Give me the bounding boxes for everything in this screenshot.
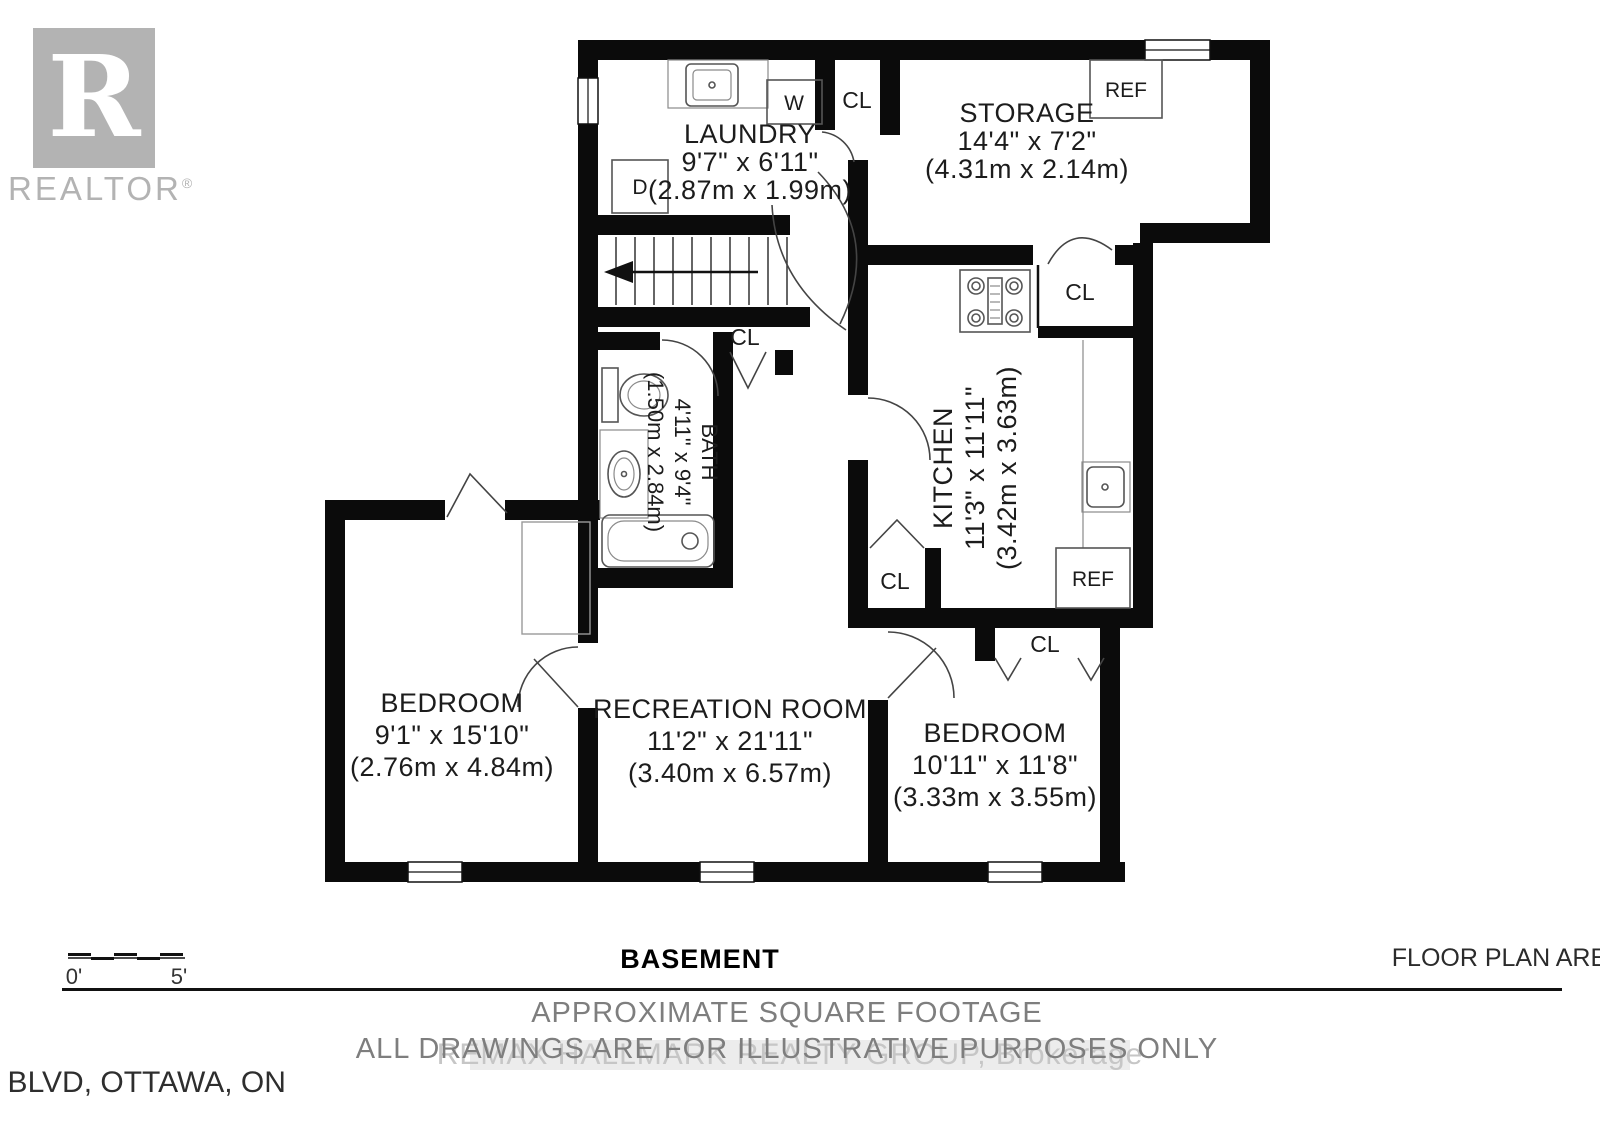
room-label-storage: STORAGE 14'4" x 7'2" (4.31m x 2.14m) bbox=[925, 98, 1129, 184]
svg-text:BEDROOM: BEDROOM bbox=[923, 718, 1066, 748]
room-label-bath: BATH 4'11" x 9'4" (1.50m x 2.84m) bbox=[643, 372, 722, 532]
window bbox=[578, 78, 598, 124]
svg-text:(3.42m x 3.63m): (3.42m x 3.63m) bbox=[992, 366, 1022, 570]
svg-text:RECREATION ROOM: RECREATION ROOM bbox=[593, 694, 867, 724]
svg-text:(3.33m x 3.55m): (3.33m x 3.55m) bbox=[893, 782, 1097, 812]
scale-bar: 0' 5' bbox=[66, 953, 187, 989]
washer-box: W bbox=[767, 80, 822, 124]
floor-plan-area-note: FLOOR PLAN AREA 992 sq.ft. bbox=[1392, 944, 1600, 972]
disclaimer-line-1: APPROXIMATE SQUARE FOOTAGE bbox=[531, 997, 1043, 1029]
svg-text:BATH: BATH bbox=[697, 423, 722, 480]
fridge-label-kitchen: REF bbox=[1072, 568, 1114, 591]
closet-marker: CL bbox=[842, 87, 872, 113]
svg-text:(2.76m x 4.84m): (2.76m x 4.84m) bbox=[350, 752, 554, 782]
floor-name-title: BASEMENT bbox=[620, 944, 780, 974]
scale-end-label: 5' bbox=[171, 964, 187, 989]
svg-text:STORAGE: STORAGE bbox=[959, 98, 1094, 128]
closet-marker: CL bbox=[880, 568, 910, 594]
fridge-box-kitchen: REF bbox=[1056, 548, 1130, 608]
floor-plan-page: R REALTOR® bbox=[0, 0, 1600, 1131]
room-label-laundry: LAUNDRY 9'7" x 6'11" (2.87m x 1.99m) bbox=[648, 119, 852, 205]
svg-text:11'2" x 21'11": 11'2" x 21'11" bbox=[647, 726, 813, 756]
window bbox=[408, 862, 462, 882]
svg-text:11'3" x 11'11": 11'3" x 11'11" bbox=[960, 386, 990, 550]
svg-text:KITCHEN: KITCHEN bbox=[928, 407, 958, 529]
footer-divider bbox=[62, 988, 1562, 991]
washer-label: W bbox=[784, 92, 804, 115]
svg-text:9'1" x 15'10": 9'1" x 15'10" bbox=[375, 720, 530, 750]
svg-text:(1.50m x 2.84m): (1.50m x 2.84m) bbox=[643, 372, 668, 532]
closet-marker: CL bbox=[730, 324, 760, 350]
dryer-label: D bbox=[632, 176, 647, 199]
laundry-sink-icon bbox=[668, 60, 768, 108]
kitchen-sink-icon bbox=[1082, 462, 1130, 512]
closet-marker: CL bbox=[1030, 631, 1060, 657]
svg-text:(4.31m x 2.14m): (4.31m x 2.14m) bbox=[925, 154, 1129, 184]
scale-start-label: 0' bbox=[66, 964, 82, 989]
svg-text:BEDROOM: BEDROOM bbox=[380, 688, 523, 718]
fridge-label-storage: REF bbox=[1105, 79, 1147, 102]
floor-plan-svg: W D REF bbox=[0, 0, 1600, 1131]
window bbox=[700, 862, 754, 882]
stove-icon bbox=[960, 270, 1030, 332]
property-address: 431 BLAKE BLVD, OTTAWA, ON bbox=[0, 1066, 286, 1099]
svg-text:14'4" x 7'2": 14'4" x 7'2" bbox=[957, 126, 1096, 156]
disclaimer-line-2: ALL DRAWINGS ARE FOR ILLUSTRATIVE PURPOS… bbox=[356, 1033, 1218, 1065]
window bbox=[1145, 40, 1210, 60]
stairs-direction-arrow bbox=[604, 261, 758, 283]
svg-text:4'11" x 9'4": 4'11" x 9'4" bbox=[670, 399, 695, 506]
svg-text:10'11" x 11'8": 10'11" x 11'8" bbox=[912, 750, 1078, 780]
svg-text:9'7" x 6'11": 9'7" x 6'11" bbox=[681, 147, 818, 177]
room-label-kitchen: KITCHEN 11'3" x 11'11" (3.42m x 3.63m) bbox=[928, 366, 1022, 570]
room-label-bedroom-right: BEDROOM 10'11" x 11'8" (3.33m x 3.55m) bbox=[893, 718, 1097, 812]
room-label-recreation: RECREATION ROOM 11'2" x 21'11" (3.40m x … bbox=[593, 694, 867, 788]
svg-text:LAUNDRY: LAUNDRY bbox=[684, 119, 816, 149]
vanity-sink-icon bbox=[600, 430, 648, 518]
window bbox=[988, 862, 1042, 882]
svg-text:(3.40m x 6.57m): (3.40m x 6.57m) bbox=[628, 758, 832, 788]
fridge-box-storage: REF bbox=[1090, 60, 1162, 118]
stairs-icon bbox=[604, 237, 787, 305]
room-label-bedroom-left: BEDROOM 9'1" x 15'10" (2.76m x 4.84m) bbox=[350, 688, 554, 782]
svg-text:(2.87m x 1.99m): (2.87m x 1.99m) bbox=[648, 175, 852, 205]
closet-marker: CL bbox=[1065, 279, 1095, 305]
